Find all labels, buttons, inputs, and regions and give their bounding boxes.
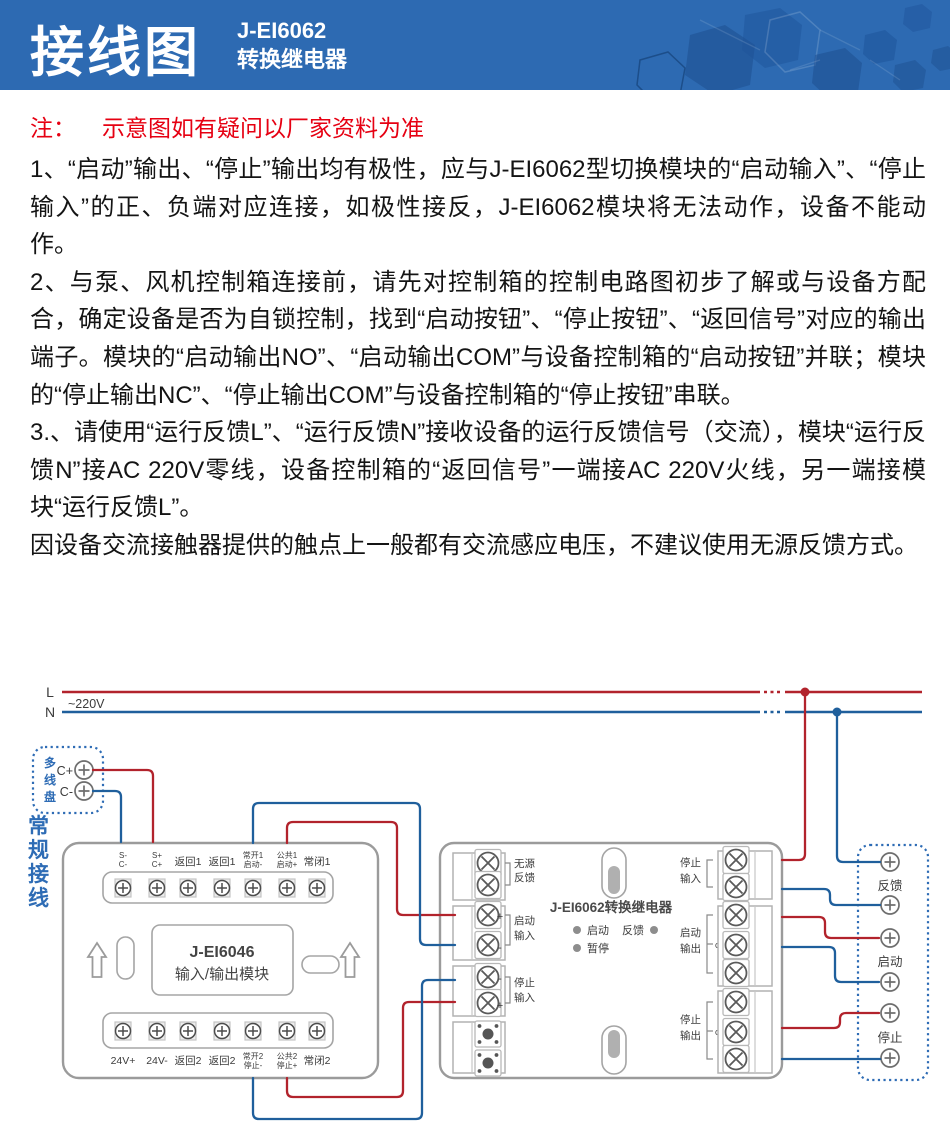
screw-terminal-icon xyxy=(115,879,131,897)
wiring-diagram: L N ~220V 多 线 盘 C+ C- 常 规 接 线 xyxy=(0,670,950,1147)
svg-text:输入: 输入 xyxy=(680,872,701,885)
svg-text:无源: 无源 xyxy=(514,857,535,870)
instruction-paragraph-4: 因设备交流接触器提供的触点上一般都有交流感应电压，不建议使用无源反馈方式。 xyxy=(30,527,926,565)
svg-text:停止: 停止 xyxy=(514,976,535,989)
screw-terminal-icon xyxy=(309,1022,325,1040)
svg-text:停止: 停止 xyxy=(680,1013,701,1026)
svg-text:24V-: 24V- xyxy=(146,1055,168,1067)
terminal-c-plus-label: C+ xyxy=(57,764,73,778)
screw-terminal-icon xyxy=(75,761,93,779)
screw-terminal-icon xyxy=(723,960,749,987)
panel-name-char: 线 xyxy=(44,772,56,787)
led-feedback-label: 反馈 xyxy=(622,924,644,937)
device-start-label: 启动 xyxy=(877,955,902,969)
svg-text:规: 规 xyxy=(28,839,49,862)
svg-text:常开2: 常开2 xyxy=(243,1052,264,1061)
model-type: 转换继电器 xyxy=(237,45,347,74)
instruction-paragraph-3: 3.、请使用“运行反馈L”、“运行反馈N”接收设备的运行反馈信号（交流），模块“… xyxy=(30,414,926,527)
svg-text:S-: S- xyxy=(119,851,127,860)
svg-text:线: 线 xyxy=(28,886,49,910)
screw-terminal-icon xyxy=(115,1022,131,1040)
address-dip-icon xyxy=(475,1050,501,1076)
svg-text:输出: 输出 xyxy=(680,942,701,955)
multiline-panel-box: 多 线 盘 C+ C- xyxy=(33,747,103,813)
svg-text:-: - xyxy=(498,942,502,954)
module-subtitle: 输入/输出模块 xyxy=(175,966,269,983)
screw-terminal-icon xyxy=(881,929,899,947)
note-prefix: 注： xyxy=(30,115,76,141)
instruction-paragraph-2: 2、与泵、风机控制箱连接前，请先对控制箱的控制电路图初步了解或与设备方配合，确定… xyxy=(30,264,926,414)
module-jei6062: 无源 反馈 + 启动 输入 - - 停止 输入 + J-EI6062转换继电器 … xyxy=(440,843,782,1078)
svg-text:启动: 启动 xyxy=(680,926,701,939)
voltage-label: ~220V xyxy=(68,697,105,711)
svg-text:返回2: 返回2 xyxy=(209,1055,236,1067)
power-bus: L N ~220V xyxy=(45,684,922,720)
power-line-L-label: L xyxy=(46,684,54,700)
screw-terminal-icon xyxy=(180,1022,196,1040)
led-start-label: 启动 xyxy=(587,924,609,937)
page: { "header":{"title":"接线图","model":"J-EI6… xyxy=(0,0,950,1147)
module-title: J-EI6046 xyxy=(190,944,255,961)
screw-terminal-icon xyxy=(881,853,899,871)
device-feedback-label: 反馈 xyxy=(877,879,902,893)
svg-text:反馈: 反馈 xyxy=(514,871,535,884)
wire-N-to-device xyxy=(837,714,880,862)
svg-text:C-: C- xyxy=(119,860,128,869)
panel-name-char: 多 xyxy=(44,755,56,770)
device-stop-label: 停止 xyxy=(877,1030,902,1045)
svg-text:+: + xyxy=(497,911,503,923)
svg-text:输入: 输入 xyxy=(514,991,535,1004)
svg-text:常: 常 xyxy=(28,814,49,838)
screw-terminal-icon xyxy=(881,973,899,991)
screw-terminal-icon xyxy=(881,896,899,914)
svg-text:C+: C+ xyxy=(152,860,163,869)
power-line-N-label: N xyxy=(45,704,55,720)
wire-startout-com xyxy=(782,947,879,982)
wire-stopout-com xyxy=(782,1013,879,1028)
page-title: 接线图 xyxy=(30,8,201,87)
screw-terminal-icon xyxy=(180,879,196,897)
svg-text:常闭2: 常闭2 xyxy=(304,1054,331,1067)
screw-terminal-icon xyxy=(723,874,749,901)
mount-slot xyxy=(302,956,339,973)
svg-text:常闭1: 常闭1 xyxy=(304,855,331,868)
screw-terminal-icon xyxy=(723,932,749,959)
screw-terminal-icon xyxy=(475,964,501,991)
svg-text:24V+: 24V+ xyxy=(111,1055,136,1067)
screw-terminal-icon xyxy=(723,989,749,1016)
page-banner: 接线图 J-EI6062 转换继电器 xyxy=(0,0,950,90)
svg-text:停止: 停止 xyxy=(680,856,701,869)
wire-cplus-to-module xyxy=(93,770,153,842)
panel-name-char: 盘 xyxy=(44,789,56,804)
module-jei6046: S- C- S+ C+ 返回1 返回1 常开1 启动- 公共1 启动+ 常闭1 … xyxy=(63,843,378,1078)
led-pause-label: 暂停 xyxy=(587,941,609,955)
screw-terminal-icon xyxy=(214,1022,230,1040)
screw-terminal-icon xyxy=(723,1019,749,1046)
screw-terminal-icon xyxy=(881,1049,899,1067)
wire-L-to-module xyxy=(782,694,805,860)
screw-terminal-icon xyxy=(245,879,261,897)
led-feedback-icon xyxy=(650,926,658,934)
led-pause-icon xyxy=(573,944,581,952)
screw-terminal-icon xyxy=(309,879,325,897)
svg-text:启动: 启动 xyxy=(514,914,535,927)
led-start-icon xyxy=(573,926,581,934)
svg-text:-: - xyxy=(498,973,502,985)
screw-terminal-icon xyxy=(723,902,749,929)
note-text: 示意图如有疑问以厂家资料为准 xyxy=(102,115,424,141)
device-terminal-box: 反馈 启动 停止 xyxy=(858,845,928,1080)
screw-terminal-icon xyxy=(475,872,501,899)
instructions: 1、“启动”输出、“停止”输出均有极性，应与J-EI6062型切换模块的“启动输… xyxy=(30,151,926,565)
svg-text:启动+: 启动+ xyxy=(277,859,298,869)
svg-text:常开1: 常开1 xyxy=(243,851,264,860)
screw-terminal-icon xyxy=(279,879,295,897)
svg-text:停止-: 停止- xyxy=(244,1060,263,1070)
conventional-wiring-label: 常 规 接 线 xyxy=(28,814,49,910)
module-title: J-EI6062转换继电器 xyxy=(550,899,673,915)
terminal-c-minus-label: C- xyxy=(60,785,73,799)
svg-text:停止+: 停止+ xyxy=(277,1060,298,1070)
mount-slot xyxy=(117,937,134,979)
wire-startout-no xyxy=(782,917,879,938)
svg-text:返回1: 返回1 xyxy=(209,856,236,868)
screw-terminal-icon xyxy=(881,1004,899,1022)
screw-terminal-icon xyxy=(149,879,165,897)
svg-text:公共2: 公共2 xyxy=(277,1052,298,1061)
screw-terminal-icon xyxy=(475,932,501,959)
screw-terminal-icon xyxy=(723,1046,749,1073)
model-number: J-EI6062 xyxy=(237,16,347,45)
svg-text:S+: S+ xyxy=(152,851,162,860)
screw-terminal-icon xyxy=(149,1022,165,1040)
svg-text:输入: 输入 xyxy=(514,929,535,942)
disclaimer-note: 注：示意图如有疑问以厂家资料为准 xyxy=(30,109,424,143)
svg-text:接: 接 xyxy=(28,863,49,886)
svg-text:返回1: 返回1 xyxy=(175,856,202,868)
wire-moduleN-to-device xyxy=(782,889,880,905)
screw-terminal-icon xyxy=(723,847,749,874)
address-dip-icon xyxy=(475,1021,501,1047)
svg-text:返回2: 返回2 xyxy=(175,1055,202,1067)
svg-text:输出: 输出 xyxy=(680,1029,701,1042)
svg-text:+: + xyxy=(497,1000,503,1012)
wire-cminus-to-module xyxy=(93,791,121,842)
instruction-paragraph-1: 1、“启动”输出、“停止”输出均有极性，应与J-EI6062型切换模块的“启动输… xyxy=(30,151,926,264)
banner-decoration-cubes-icon xyxy=(550,0,950,90)
screw-terminal-icon xyxy=(75,782,93,800)
screw-terminal-icon xyxy=(279,1022,295,1040)
screw-terminal-icon xyxy=(214,879,230,897)
svg-text:公共1: 公共1 xyxy=(277,851,298,860)
product-model-block: J-EI6062 转换继电器 xyxy=(237,16,347,74)
screw-terminal-icon xyxy=(245,1022,261,1040)
svg-text:启动-: 启动- xyxy=(244,859,263,869)
